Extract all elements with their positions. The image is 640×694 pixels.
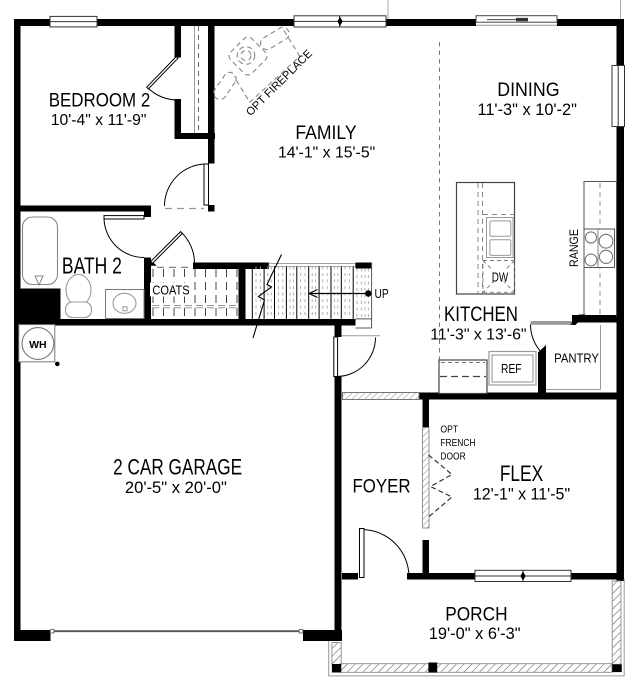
svg-text:20'-5" x 20'-0": 20'-5" x 20'-0"	[125, 478, 227, 497]
svg-text:FLEX: FLEX	[500, 461, 544, 486]
svg-text:UP: UP	[375, 286, 389, 301]
svg-text:DW: DW	[492, 271, 509, 285]
svg-text:OPT: OPT	[440, 424, 458, 436]
svg-text:19'-0" x 6'-3": 19'-0" x 6'-3"	[429, 625, 521, 643]
svg-text:COATS: COATS	[152, 283, 189, 298]
svg-text:14'-1" x 15'-5": 14'-1" x 15'-5"	[278, 145, 375, 162]
svg-text:REF: REF	[501, 362, 522, 376]
svg-text:DINING: DINING	[497, 79, 559, 101]
svg-text:DOOR: DOOR	[440, 450, 466, 462]
svg-text:PANTRY: PANTRY	[554, 351, 599, 366]
svg-text:WH: WH	[29, 339, 47, 351]
svg-text:BEDROOM 2: BEDROOM 2	[49, 91, 151, 112]
svg-text:FOYER: FOYER	[352, 476, 410, 498]
svg-text:11'-3" x 13'-6": 11'-3" x 13'-6"	[430, 327, 526, 344]
svg-text:10'-4" x 11'-9": 10'-4" x 11'-9"	[51, 112, 147, 129]
svg-text:FAMILY: FAMILY	[295, 122, 356, 144]
svg-text:BATH 2: BATH 2	[62, 253, 122, 279]
svg-text:12'-1" x 11'-5": 12'-1" x 11'-5"	[473, 485, 570, 504]
svg-text:FRENCH: FRENCH	[440, 437, 475, 449]
svg-text:KITCHEN: KITCHEN	[444, 303, 518, 326]
svg-text:11'-3" x 10'-2": 11'-3" x 10'-2"	[477, 100, 577, 119]
svg-text:RANGE: RANGE	[567, 229, 581, 267]
svg-text:PORCH: PORCH	[445, 604, 507, 626]
svg-text:2 CAR GARAGE: 2 CAR GARAGE	[113, 455, 242, 480]
